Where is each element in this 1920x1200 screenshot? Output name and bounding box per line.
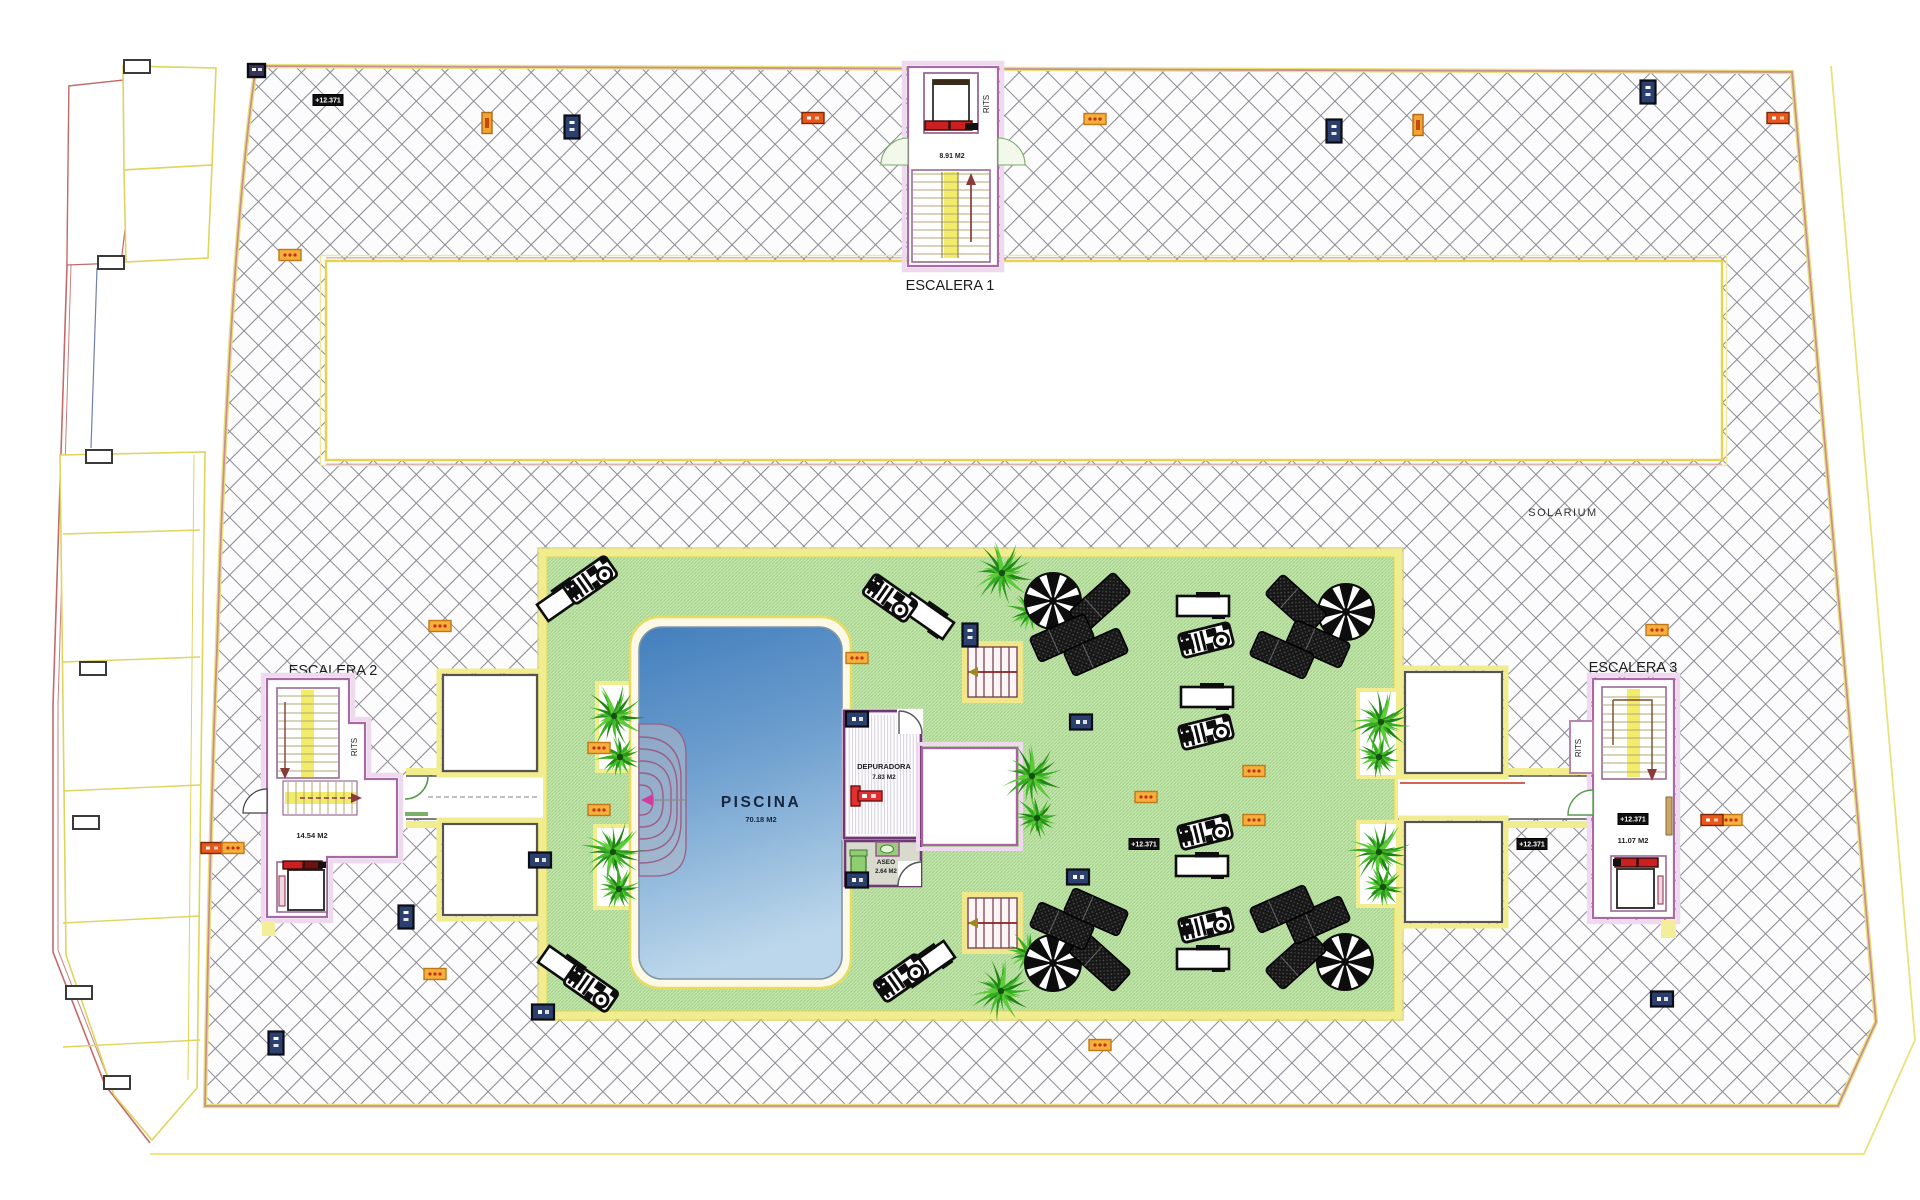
svg-text:7.83 M2: 7.83 M2 xyxy=(872,774,896,781)
svg-text:ESCALERA 1: ESCALERA 1 xyxy=(906,278,995,294)
svg-text:11.07 M2: 11.07 M2 xyxy=(1618,836,1649,845)
svg-text:RITS: RITS xyxy=(350,738,359,756)
svg-text:SOLARIUM: SOLARIUM xyxy=(1528,507,1597,519)
svg-text:ASEO: ASEO xyxy=(877,859,895,866)
svg-text:8.91 M2: 8.91 M2 xyxy=(939,153,964,160)
svg-text:2.64 M2: 2.64 M2 xyxy=(875,869,897,875)
svg-text:DEPURADORA: DEPURADORA xyxy=(857,762,911,771)
svg-text:14.54 M2: 14.54 M2 xyxy=(296,831,327,840)
svg-text:PISCINA: PISCINA xyxy=(721,794,801,811)
svg-text:RITS: RITS xyxy=(1574,739,1583,757)
svg-text:RITS: RITS xyxy=(982,95,991,113)
svg-text:70.18 M2: 70.18 M2 xyxy=(745,815,776,824)
